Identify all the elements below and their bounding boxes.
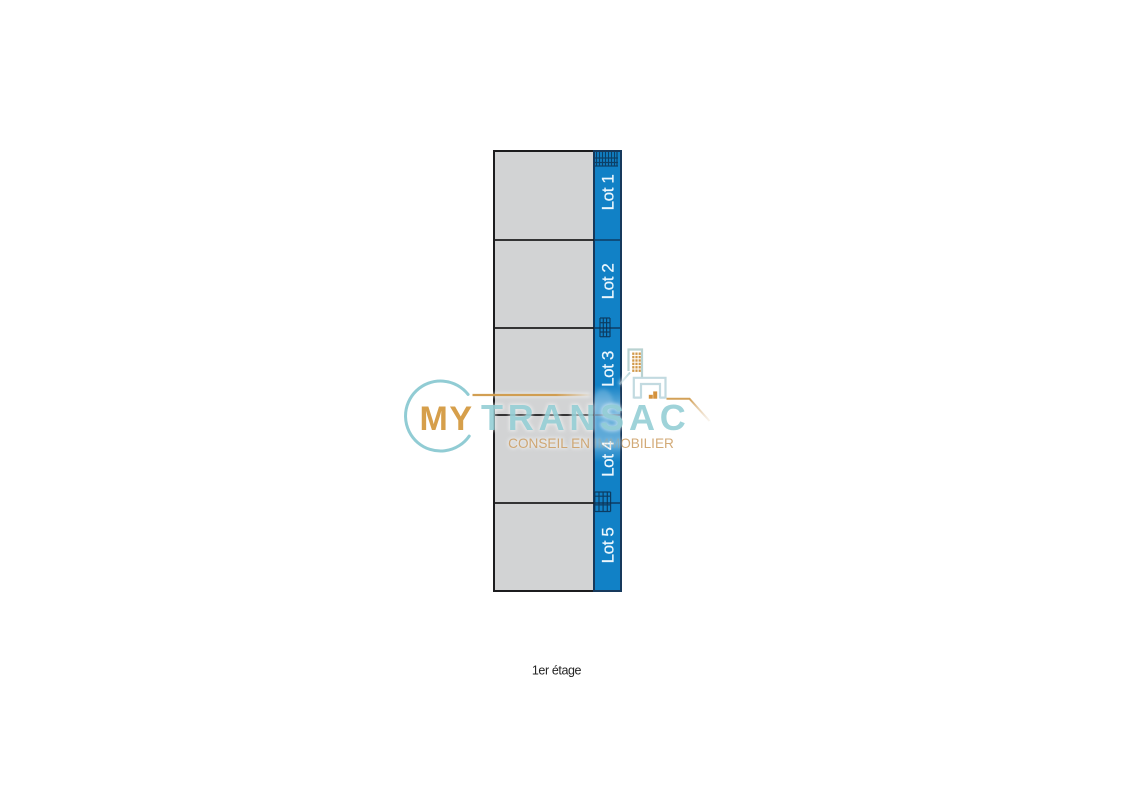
svg-text:Lot 3: Lot 3 [599,351,618,387]
svg-text:Lot 1: Lot 1 [599,175,618,211]
svg-text:Lot 5: Lot 5 [599,528,618,564]
svg-text:Lot 2: Lot 2 [599,264,618,300]
svg-text:MY: MY [420,400,474,438]
svg-text:CONSEIL EN IMMOBILIER: CONSEIL EN IMMOBILIER [508,436,674,451]
svg-text:TRANSAC: TRANSAC [481,397,691,438]
svg-text:1er étage: 1er étage [532,664,582,678]
